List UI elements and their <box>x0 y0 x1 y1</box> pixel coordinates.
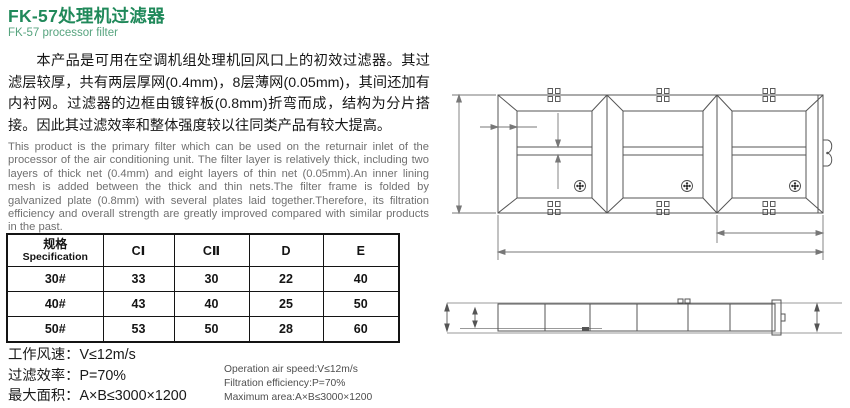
col-header-d: D <box>249 234 323 267</box>
col-header-specification-cn: 规格 <box>8 237 103 251</box>
page-title: FK-57处理机过滤器 <box>8 3 165 28</box>
spec-line-efficiency-cn: 过滤效率：P=70% <box>8 366 187 387</box>
technical-drawings <box>430 55 850 345</box>
col-header-e: E <box>323 234 399 267</box>
col-header-c2: CⅡ <box>174 234 249 267</box>
cell-e: 60 <box>323 317 399 343</box>
description-english: This product is the primary filter which… <box>8 141 429 235</box>
cell-c1: 53 <box>103 317 174 343</box>
table-header-row: 规格 Specification CⅠ CⅡ D E <box>7 234 399 267</box>
col-header-specification-en: Specification <box>8 251 103 264</box>
dimension-lines <box>445 304 819 331</box>
cell-spec: 30# <box>7 267 103 292</box>
col-header-specification: 规格 Specification <box>7 234 103 267</box>
cell-c2: 30 <box>174 267 249 292</box>
col-header-c1: CⅠ <box>103 234 174 267</box>
cell-d: 25 <box>249 292 323 317</box>
table-row: 50# 53 50 28 60 <box>7 317 399 343</box>
catalog-page: FK-57处理机过滤器 FK-57 processor filter 本产品是可… <box>0 0 850 408</box>
specification-table: 规格 Specification CⅠ CⅡ D E 30# 33 30 22 … <box>6 233 400 343</box>
hatch-mark-icon <box>790 181 801 192</box>
operating-specs-chinese: 工作风速：V≤12m/s 过滤效率：P=70% 最大面积：A×B≤3000×12… <box>8 345 187 407</box>
description-chinese: 本产品是可用在空调机组处理机回风口上的初效过滤器。其过滤层较厚，共有两层厚网(0… <box>8 51 430 137</box>
page-subtitle: FK-57 processor filter <box>8 27 118 39</box>
hatch-mark-icon <box>682 181 693 192</box>
spec-line-max-area-en: Maximum area:A×B≤3000×1200 <box>224 391 372 405</box>
cell-c2: 40 <box>174 292 249 317</box>
cell-c1: 33 <box>103 267 174 292</box>
hatch-mark-icon <box>575 181 586 192</box>
operating-specs-english: Operation air speed:V≤12m/s Filtration e… <box>224 363 372 405</box>
cell-spec: 50# <box>7 317 103 343</box>
spec-line-max-area-cn: 最大面积：A×B≤3000×1200 <box>8 386 187 407</box>
cell-spec: 40# <box>7 292 103 317</box>
cell-c2: 50 <box>174 317 249 343</box>
handle-icon <box>823 140 832 166</box>
cell-d: 22 <box>249 267 323 292</box>
cell-e: 50 <box>323 292 399 317</box>
front-view-drawing <box>452 89 832 261</box>
latch-mark-icon <box>582 327 589 331</box>
side-view-drawing <box>445 299 842 335</box>
table-row: 40# 43 40 25 50 <box>7 292 399 317</box>
cell-e: 40 <box>323 267 399 292</box>
spec-line-air-speed-cn: 工作风速：V≤12m/s <box>8 345 187 366</box>
cell-d: 28 <box>249 317 323 343</box>
cell-c1: 43 <box>103 292 174 317</box>
table-row: 30# 33 30 22 40 <box>7 267 399 292</box>
dimension-lines <box>452 95 823 260</box>
spec-line-air-speed-en: Operation air speed:V≤12m/s <box>224 363 372 377</box>
spec-line-efficiency-en: Filtration efficiency:P=70% <box>224 377 372 391</box>
